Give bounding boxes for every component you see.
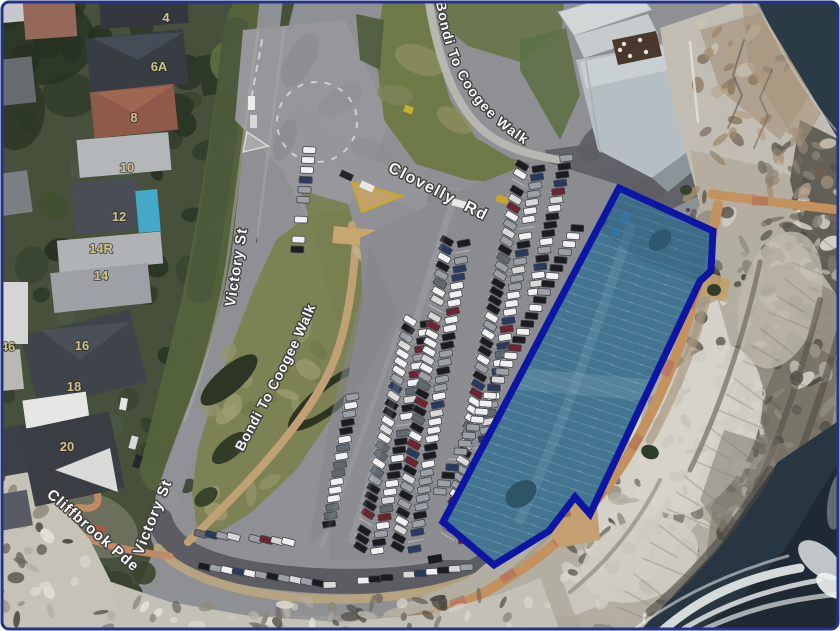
svg-text:8: 8	[130, 110, 137, 125]
svg-text:12: 12	[112, 209, 126, 224]
svg-text:14R: 14R	[89, 241, 113, 256]
svg-text:18: 18	[67, 379, 81, 394]
svg-text:6A: 6A	[151, 59, 168, 74]
svg-text:20: 20	[60, 439, 74, 454]
svg-text:10: 10	[120, 160, 134, 175]
svg-text:4: 4	[162, 10, 170, 25]
svg-text:14: 14	[94, 268, 109, 283]
svg-text:16: 16	[75, 338, 89, 353]
